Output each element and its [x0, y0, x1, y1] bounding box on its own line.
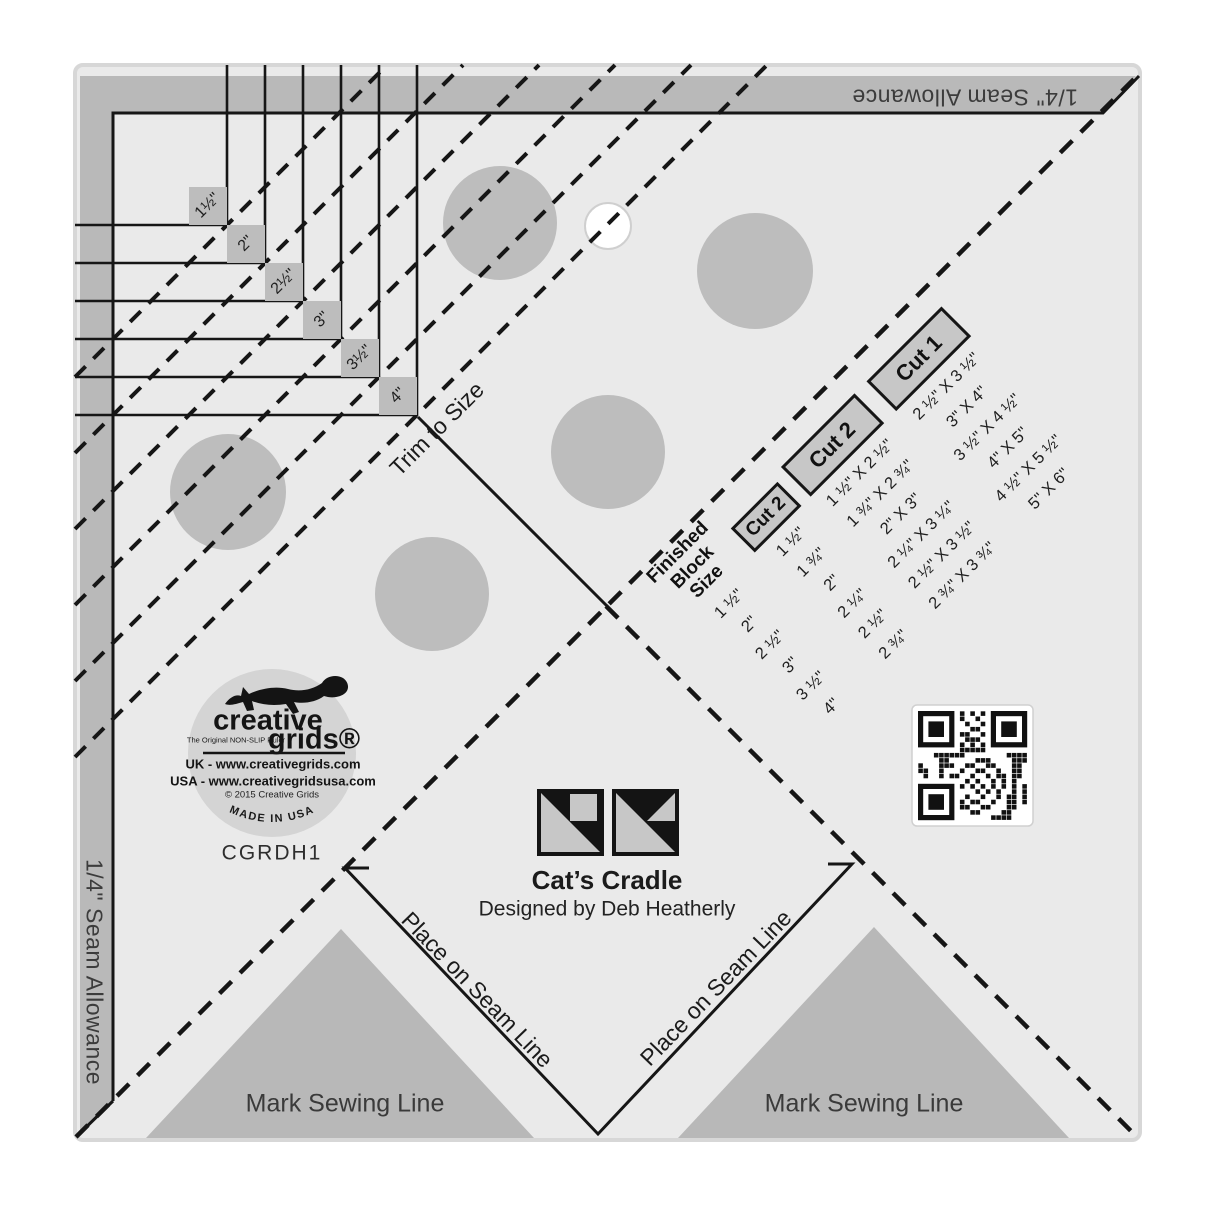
product-code: CGRDH1	[222, 843, 323, 864]
size-tag-label: 3"	[310, 308, 333, 331]
size-tag: 2"	[227, 225, 265, 263]
mark-sewing-line-right: Mark Sewing Line	[765, 1092, 964, 1117]
grip-dot	[375, 537, 489, 651]
ruler-graphic: MADE IN USA	[0, 0, 1214, 1214]
size-tag-label: 3½"	[344, 342, 376, 374]
mark-sewing-line-left: Mark Sewing Line	[246, 1092, 445, 1117]
size-tag: 2½"	[265, 263, 303, 301]
size-tag: 3½"	[341, 339, 379, 377]
ruler-product-image: MADE IN USA 1/4" Seam Allowance 1/4" Sea…	[0, 0, 1214, 1214]
logo-copyright: © 2015 Creative Grids	[225, 790, 319, 800]
grip-dot	[551, 395, 665, 509]
block-title: Cat’s Cradle	[532, 867, 683, 893]
cut2a-size: 2"	[820, 571, 844, 595]
grip-dot	[443, 166, 557, 280]
finished-size: 2"	[738, 613, 762, 637]
size-tag: 1½"	[189, 187, 227, 225]
seam-allowance-left-label: 1/4" Seam Allowance	[83, 859, 106, 1085]
seam-allowance-top-label: 1/4" Seam Allowance	[852, 86, 1078, 109]
qr-code	[912, 705, 1033, 826]
size-tag: 4"	[379, 377, 417, 415]
grip-dot	[697, 213, 813, 329]
size-tag-label: 2½"	[268, 266, 300, 298]
logo-uk-url: UK - www.creativegrids.com	[185, 758, 360, 771]
size-tag: 3"	[303, 301, 341, 339]
finished-size: 3"	[779, 654, 803, 678]
size-tag-label: 1½"	[192, 190, 224, 222]
logo-usa-url: USA - www.creativegridsusa.com	[170, 775, 376, 788]
finished-size: 4"	[820, 695, 844, 719]
size-tag-label: 4"	[386, 384, 409, 407]
designer-credit: Designed by Deb Heatherly	[479, 899, 736, 920]
size-tag-label: 2"	[234, 232, 257, 255]
logo-brand-grids: grids®	[268, 726, 360, 755]
